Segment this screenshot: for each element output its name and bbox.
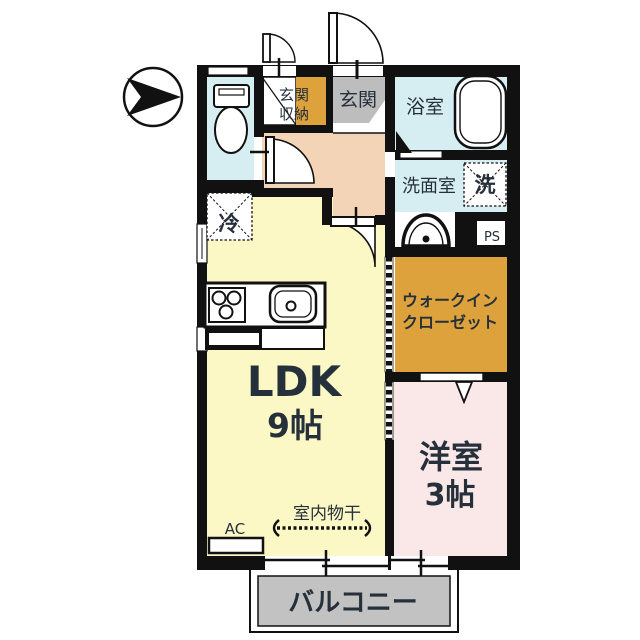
wic-door-slot	[420, 373, 483, 381]
entrance-step	[333, 122, 385, 133]
ac-label: AC	[225, 520, 245, 538]
wic-label-2: クローゼット	[402, 313, 498, 332]
western-room-label: 洋室	[419, 438, 483, 476]
indoor-drying-label: 室内物干	[293, 504, 361, 524]
hall-floor-patch	[333, 197, 385, 217]
toilet-bowl	[215, 107, 247, 153]
storage-door-leaf	[263, 34, 270, 62]
stove-burner-1	[213, 292, 226, 305]
toilet-fixture	[214, 85, 249, 153]
window-toilet	[208, 67, 248, 75]
wall-western-left	[385, 440, 394, 558]
ldk-label: LDK	[247, 357, 343, 406]
wall-storage-bottom	[254, 125, 333, 133]
toilet-door-leaf	[266, 137, 274, 183]
ldk-size-label: 9帖	[267, 406, 323, 445]
western-room-size-label: 3帖	[425, 478, 476, 513]
entrance-storage-label-2: 収納	[279, 105, 309, 123]
entrance-label: 玄関	[339, 89, 377, 111]
north-arrow	[124, 68, 182, 126]
wall-right	[507, 65, 520, 570]
entrance-door-leaf	[329, 13, 337, 63]
stove-burner-2	[228, 292, 241, 305]
wall-storage-entrance	[326, 77, 333, 125]
ldk-door-leaf	[331, 217, 375, 226]
sink-drain	[287, 302, 296, 311]
toilet-lid-detail	[219, 89, 244, 95]
wall-center-upper	[385, 77, 395, 152]
fridge-label: 冷	[219, 212, 240, 236]
washer-label: 洗	[475, 173, 496, 197]
balcony-label: バルコニー	[288, 588, 417, 618]
wall-toilet-bottom	[197, 180, 264, 189]
kitchen-counter	[205, 283, 325, 350]
balcony: バルコニー	[250, 568, 458, 632]
sliding-partition	[385, 257, 393, 440]
washbasin-drain	[423, 236, 430, 243]
kitchen-base-panel	[262, 329, 323, 348]
bathtub	[455, 76, 506, 148]
wall-center-mid	[385, 177, 395, 257]
toilet-tank	[214, 85, 249, 107]
entrance-storage-label-1: 玄関	[279, 86, 309, 104]
washroom-label: 洗面室	[402, 176, 456, 197]
wic-label-1: ウォークイン	[402, 291, 498, 310]
wall-wic-top	[385, 247, 520, 257]
stove-burner-3	[220, 306, 233, 319]
ps-label: PS	[484, 230, 500, 245]
window-western-balcony	[391, 556, 448, 570]
kitchen-base-slot	[209, 333, 259, 345]
ac-unit	[209, 538, 263, 553]
floor-plan: バルコニー	[0, 0, 640, 640]
bath-label: 浴室	[406, 96, 444, 118]
